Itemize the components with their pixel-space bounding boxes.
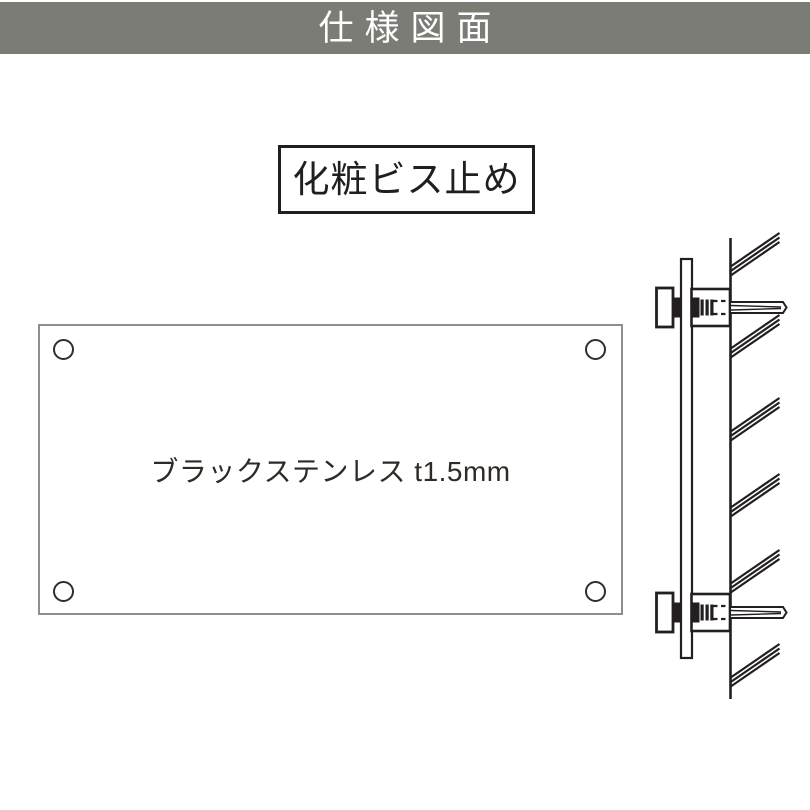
wall-hatch-group <box>730 474 780 517</box>
mounting-method-box: 化粧ビス止め <box>278 145 535 214</box>
mounting-screw-bottom <box>657 593 787 632</box>
wall-hatch-group <box>730 233 780 276</box>
header-bar: 仕様図面 <box>0 2 810 54</box>
screw-hole-bottom-right <box>585 581 606 602</box>
wall-hatch-group <box>730 644 780 687</box>
screw-hole-top-right <box>585 339 606 360</box>
screw-hole-bottom-left <box>53 581 74 602</box>
plate-material-label: ブラックステンレス t1.5mm <box>150 450 510 490</box>
screw-hole-top-left <box>53 339 74 360</box>
sign-plate-front-view: ブラックステンレス t1.5mm <box>38 324 623 615</box>
mounting-method-label: 化粧ビス止め <box>293 161 521 198</box>
wall-hatch-group <box>730 550 780 593</box>
side-view-diagram <box>630 225 810 715</box>
page-title: 仕様図面 <box>307 11 502 46</box>
wall-hatch-group <box>730 398 780 441</box>
spec-drawing-page: 仕様図面 化粧ビス止め ブラックステンレス t1.5mm <box>0 0 810 810</box>
mounting-screw-top <box>657 288 787 327</box>
wall-hatch-group <box>730 315 780 358</box>
